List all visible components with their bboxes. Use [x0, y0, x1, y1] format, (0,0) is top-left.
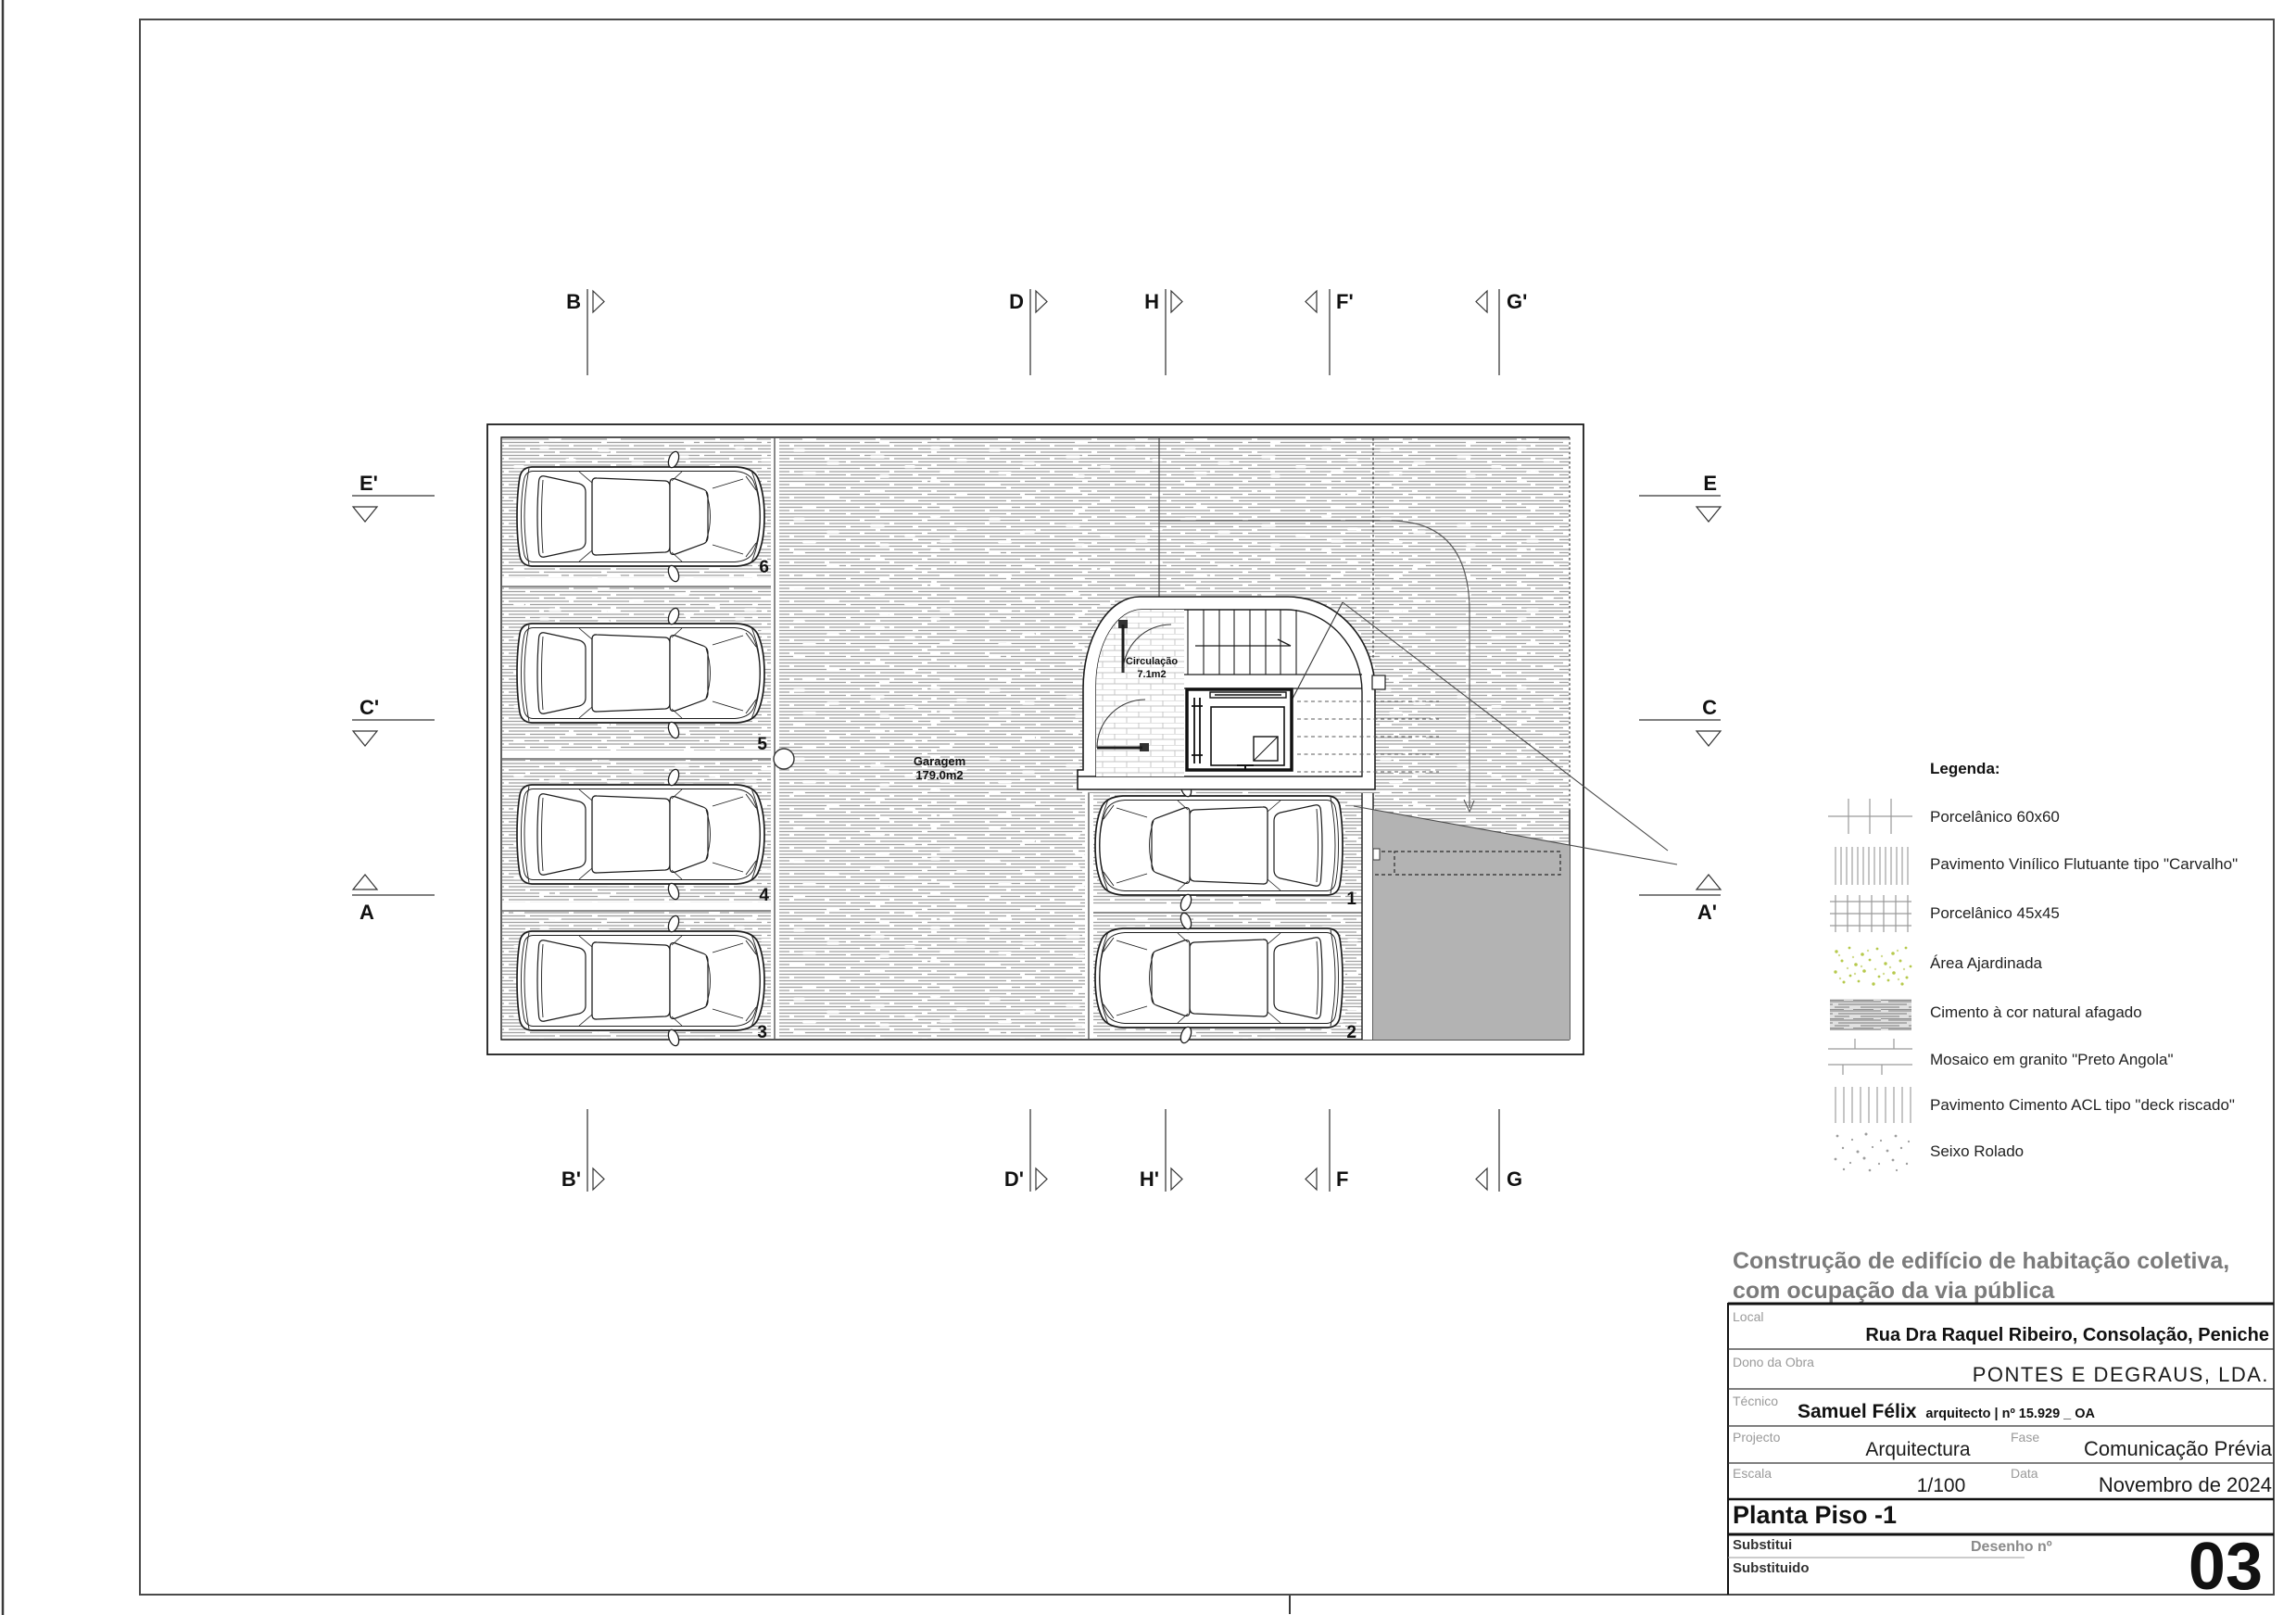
svg-text:Arquitectura: Arquitectura — [1865, 1439, 1971, 1460]
svg-text:Pavimento Vinílico Flutuante t: Pavimento Vinílico Flutuante tipo "Carva… — [1930, 855, 2238, 873]
svg-text:Legenda:: Legenda: — [1930, 760, 2000, 777]
svg-text:F': F' — [1336, 290, 1354, 313]
svg-text:D: D — [1009, 290, 1024, 313]
svg-text:B': B' — [561, 1167, 581, 1191]
svg-text:A': A' — [1697, 901, 1717, 924]
svg-text:Local: Local — [1733, 1309, 1763, 1324]
svg-text:Novembro de 2024: Novembro de 2024 — [2099, 1473, 2272, 1496]
svg-text:Mosaico em granito "Preto Ango: Mosaico em granito "Preto Angola" — [1930, 1051, 2174, 1068]
svg-text:Circulação: Circulação — [1126, 656, 1179, 667]
svg-text:Técnico: Técnico — [1733, 1394, 1778, 1408]
svg-text:Projecto: Projecto — [1733, 1430, 1781, 1445]
svg-text:Substitui: Substitui — [1733, 1537, 1792, 1553]
svg-text:C: C — [1702, 696, 1717, 719]
svg-text:B: B — [566, 290, 581, 313]
svg-text:E: E — [1703, 472, 1717, 495]
svg-text:PONTES E DEGRAUS, LDA.: PONTES E DEGRAUS, LDA. — [1973, 1363, 2269, 1386]
svg-text:Rua Dra Raquel Ribeiro, Consol: Rua Dra Raquel Ribeiro, Consolação, Peni… — [1865, 1325, 2269, 1345]
svg-text:6: 6 — [759, 558, 769, 577]
svg-text:Construção de edifício de habi: Construção de edifício de habitação cole… — [1733, 1248, 2229, 1274]
svg-text:Desenho nº: Desenho nº — [1971, 1539, 2052, 1555]
svg-text:Dono da Obra: Dono da Obra — [1733, 1355, 1814, 1369]
svg-text:E': E' — [360, 472, 378, 495]
svg-text:H': H' — [1140, 1167, 1159, 1191]
svg-text:Substituido: Substituido — [1733, 1560, 1810, 1576]
svg-text:Área Ajardinada: Área Ajardinada — [1930, 954, 2043, 972]
svg-text:G: G — [1507, 1167, 1522, 1191]
svg-text:3: 3 — [757, 1023, 767, 1042]
svg-text:C': C' — [360, 696, 379, 719]
svg-text:Planta Piso -1: Planta Piso -1 — [1733, 1501, 1897, 1529]
svg-text:Porcelânico 60x60: Porcelânico 60x60 — [1930, 808, 2060, 826]
svg-text:1/100: 1/100 — [1917, 1475, 1966, 1496]
svg-text:D': D' — [1004, 1167, 1024, 1191]
svg-text:Comunicação Prévia: Comunicação Prévia — [2084, 1437, 2273, 1460]
svg-text:F: F — [1336, 1167, 1348, 1191]
svg-text:G': G' — [1507, 290, 1527, 313]
svg-text:5: 5 — [757, 735, 767, 754]
svg-text:Data: Data — [2011, 1466, 2038, 1481]
svg-text:com ocupação da via pública: com ocupação da via pública — [1733, 1278, 2055, 1304]
svg-text:4: 4 — [759, 886, 769, 905]
svg-text:Fase: Fase — [2011, 1430, 2039, 1445]
svg-text:Porcelânico 45x45: Porcelânico 45x45 — [1930, 904, 2060, 922]
svg-text:Garagem: Garagem — [914, 754, 965, 768]
svg-text:1: 1 — [1346, 890, 1356, 909]
svg-text:2: 2 — [1346, 1023, 1356, 1042]
svg-text:Pavimento Cimento ACL tipo "de: Pavimento Cimento ACL tipo "deck riscado… — [1930, 1096, 2235, 1114]
svg-text:179.0m2: 179.0m2 — [915, 768, 963, 782]
svg-text:Escala: Escala — [1733, 1466, 1772, 1481]
svg-text:Cimento à cor natural afagado: Cimento à cor natural afagado — [1930, 1003, 2142, 1021]
svg-text:H: H — [1144, 290, 1159, 313]
svg-text:A: A — [360, 901, 374, 924]
svg-text:7.1m2: 7.1m2 — [1137, 669, 1166, 680]
svg-text:Seixo Rolado: Seixo Rolado — [1930, 1142, 2024, 1160]
svg-text:03: 03 — [2189, 1530, 2263, 1604]
